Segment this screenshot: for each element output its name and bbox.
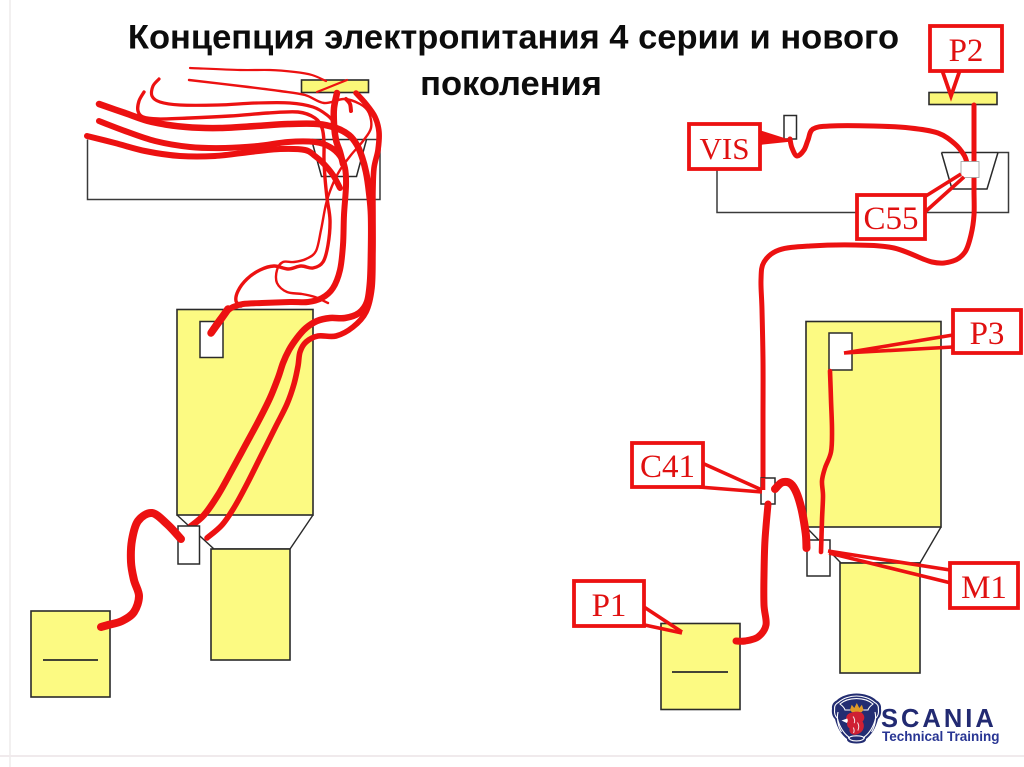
svg-text:C55: C55 [863, 201, 918, 237]
svg-text:поколения: поколения [420, 65, 602, 103]
svg-text:VIS: VIS [700, 131, 750, 166]
svg-text:Technical Training: Technical Training [882, 729, 1000, 744]
svg-text:P3: P3 [970, 316, 1005, 352]
svg-text:Концепция электропитания 4 сер: Концепция электропитания 4 серии и новог… [128, 19, 899, 57]
svg-text:P1: P1 [592, 588, 627, 624]
svg-text:M1: M1 [961, 570, 1007, 606]
svg-text:C41: C41 [640, 449, 695, 485]
svg-text:P2: P2 [949, 33, 984, 69]
